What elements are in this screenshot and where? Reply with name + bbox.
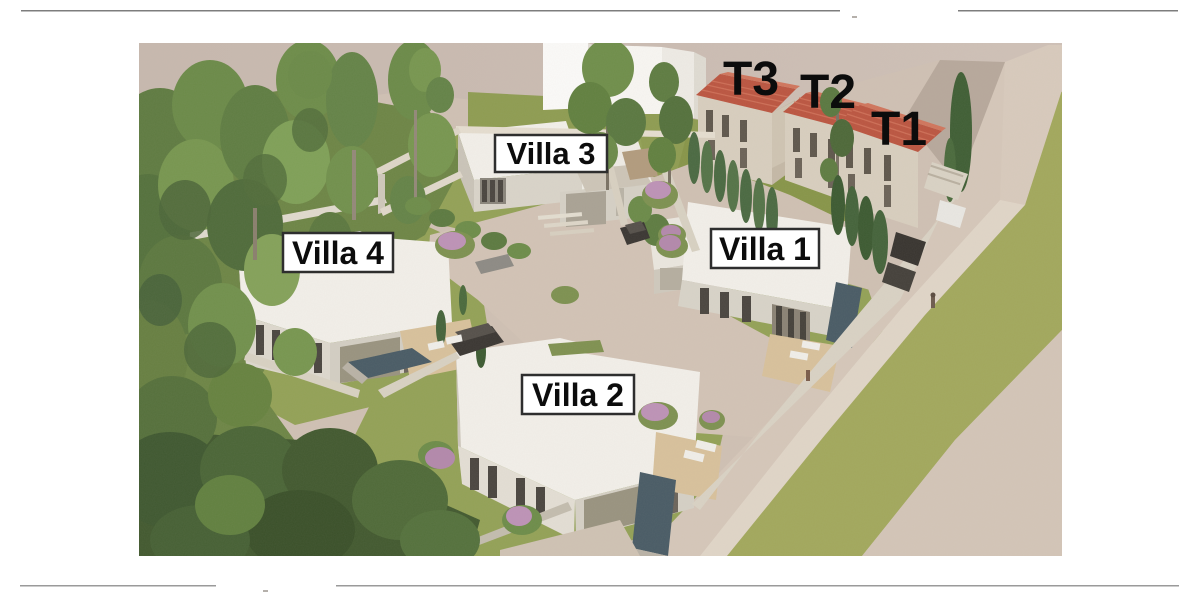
svg-text:T1: T1: [871, 103, 927, 156]
svg-text:Villa 2: Villa 2: [532, 377, 624, 413]
svg-text:Villa 4: Villa 4: [292, 235, 384, 271]
svg-text:T3: T3: [723, 53, 779, 106]
svg-text:Villa 3: Villa 3: [506, 136, 595, 171]
svg-text:Villa 1: Villa 1: [719, 231, 811, 267]
svg-text:T2: T2: [800, 66, 856, 119]
